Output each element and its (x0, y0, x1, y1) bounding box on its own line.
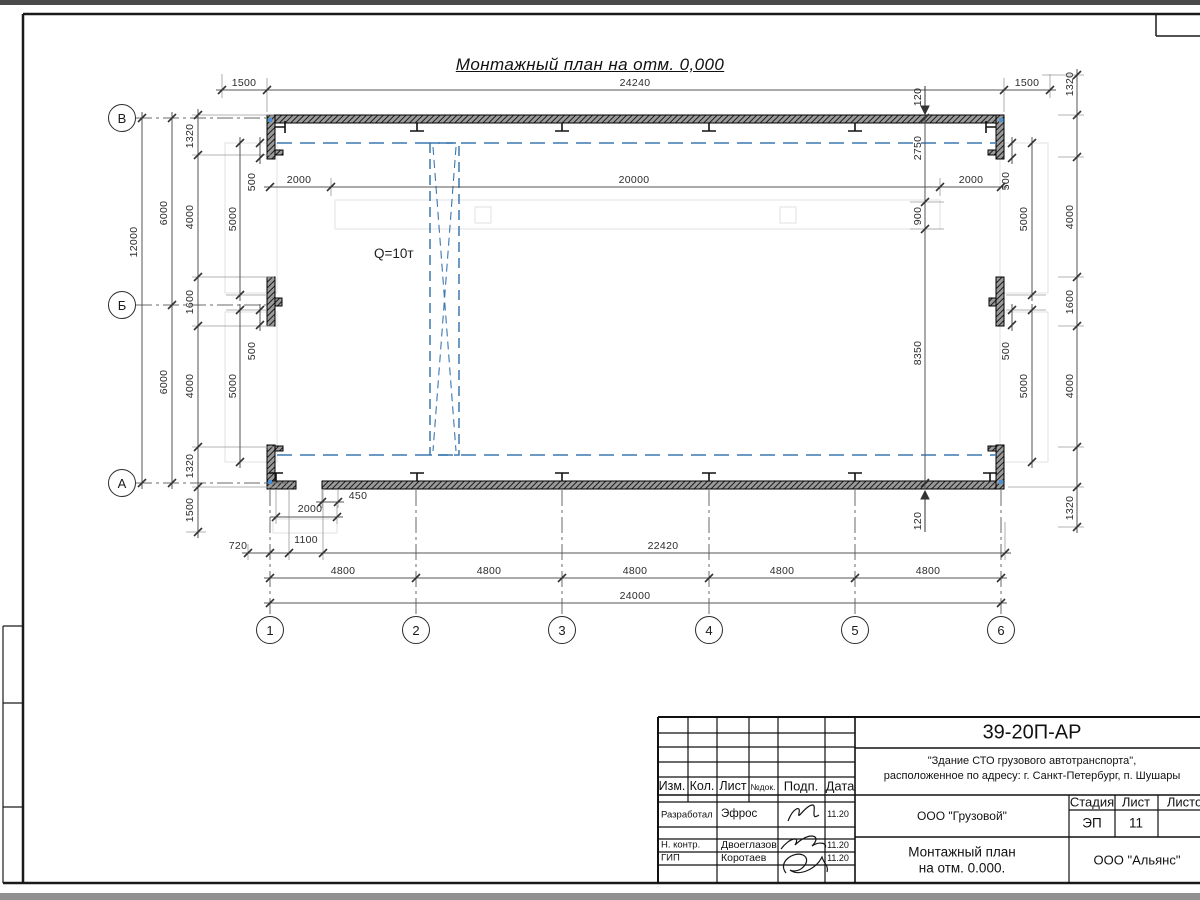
dimension-label: 5000 (227, 374, 239, 399)
axis-bubble-col: 2 (402, 616, 430, 644)
dimension-label: 24000 (620, 590, 651, 602)
dimension-label: 4000 (184, 374, 196, 399)
doc-number: 39-20П-АР (983, 722, 1082, 745)
dimension-label: 1320 (1064, 496, 1076, 521)
crane-lines (277, 143, 996, 455)
dimension-label: 450 (349, 490, 367, 502)
dimension-label: 4800 (477, 565, 502, 577)
dimension-label: 8350 (912, 341, 924, 366)
date-control: 11.20 (827, 840, 849, 850)
wall-pier-left (267, 277, 275, 326)
walls (267, 115, 1004, 489)
wall-top (267, 115, 1004, 123)
dimension-label: 1100 (294, 534, 318, 546)
sheet-label: Лист (1122, 795, 1150, 810)
wall-bottom (322, 481, 1004, 489)
axis-bubble-row: А (108, 469, 136, 497)
dimension-label: 120 (912, 512, 924, 530)
bottom-strip (0, 893, 1200, 900)
fixation-points (268, 118, 1003, 484)
dimension-label: 1500 (184, 498, 196, 523)
dimension-label: 900 (912, 207, 924, 225)
dimension-label: 4800 (770, 565, 795, 577)
left-margin-boxes (3, 626, 23, 883)
dimension-label: 6000 (158, 370, 170, 395)
dimension-label: 720 (229, 540, 247, 552)
dimension-label: 1600 (184, 290, 196, 315)
wall-pier-right (996, 277, 1004, 326)
stage-label: Стадия (1070, 795, 1114, 810)
name-developer: Эфрос (721, 808, 757, 820)
dimension-label: 6000 (158, 201, 170, 226)
object-name-line2: расположенное по адресу: г. Санкт-Петерб… (884, 770, 1180, 782)
role-developer: Разработал (661, 810, 713, 821)
axis-bubble-col: 1 (256, 616, 284, 644)
sheet-value: 11 (1129, 816, 1143, 831)
dimension-label: 500 (1000, 172, 1012, 190)
dimension-label: 4800 (623, 565, 648, 577)
dimension-label: 120 (912, 88, 924, 106)
dimension-label: 1500 (1015, 77, 1040, 89)
col-data: Дата (826, 779, 855, 794)
axis-bubble-col: 3 (548, 616, 576, 644)
axis-bubble-row: Б (108, 291, 136, 319)
dimension-label: 20000 (619, 174, 650, 186)
dimension-label: 4800 (331, 565, 356, 577)
dimension-label: 2000 (959, 174, 984, 186)
date-gip: 11.20 (827, 853, 849, 863)
dimension-label: 1320 (184, 454, 196, 479)
signature-control (781, 836, 826, 849)
col-kol: Кол. (690, 779, 715, 793)
crane-bridge (430, 143, 459, 455)
axis-bubble-col: 5 (841, 616, 869, 644)
dimension-label: 4800 (916, 565, 941, 577)
date-developer: 11.20 (827, 809, 849, 819)
dimension-label: 1320 (1064, 72, 1076, 97)
dimension-label: 12000 (128, 227, 140, 258)
col-podp: Подп. (784, 779, 819, 794)
signature-gip (783, 854, 827, 873)
dimension-label: 500 (246, 342, 258, 360)
dimension-label: 1500 (232, 77, 257, 89)
sheets-label: Листов (1167, 795, 1200, 810)
plan-title: Монтажный план на отм. 0,000 (420, 55, 760, 75)
drawing-sheet: Монтажный план на отм. 0,000 Q=10т 15002… (0, 0, 1200, 900)
dimension-label: 500 (246, 173, 258, 191)
col-ndok: №док. (751, 782, 776, 792)
axis-bubble-col: 4 (695, 616, 723, 644)
dimension-label: 2000 (298, 503, 323, 515)
dimension-label: 4000 (1064, 205, 1076, 230)
dimension-label: 1320 (184, 124, 196, 149)
dimension-label: 4000 (184, 205, 196, 230)
dimension-label: 2000 (287, 174, 312, 186)
axis-bubble-row: В (108, 104, 136, 132)
company-name: ООО "Альянс" (1094, 853, 1181, 868)
dimension-label: 5000 (1018, 207, 1030, 232)
sheet-frame (3, 14, 1200, 883)
dimension-label: 500 (1000, 342, 1012, 360)
col-izm: Изм. (659, 779, 686, 793)
client-name: ООО "Грузовой" (917, 809, 1007, 823)
axis-lines (136, 118, 1001, 616)
axis-bubble-col: 6 (987, 616, 1015, 644)
dimension-label: 1600 (1064, 290, 1076, 315)
dimension-label: 24240 (620, 77, 651, 89)
role-control: Н. контр. (661, 840, 700, 851)
stage-value: ЭП (1082, 816, 1101, 831)
dimension-label: 22420 (648, 540, 679, 552)
col-list: Лист (719, 779, 746, 793)
crane-capacity-label: Q=10т (374, 246, 414, 261)
dimension-label: 2750 (912, 136, 924, 161)
dimension-label: 4000 (1064, 374, 1076, 399)
top-strip (0, 0, 1200, 5)
sheet-title-line2: на отм. 0.000. (919, 861, 1005, 876)
role-gip: ГИП (661, 853, 680, 864)
object-name-line1: "Здание СТО грузового автотранспорта", (928, 755, 1137, 767)
dimension-label: 5000 (227, 207, 239, 232)
name-gip: Коротаев (721, 852, 766, 864)
sheet-title-line1: Монтажный план (908, 845, 1016, 860)
dimension-label: 5000 (1018, 374, 1030, 399)
signature-developer (788, 805, 819, 821)
name-control: Двоеглазов (721, 839, 777, 851)
